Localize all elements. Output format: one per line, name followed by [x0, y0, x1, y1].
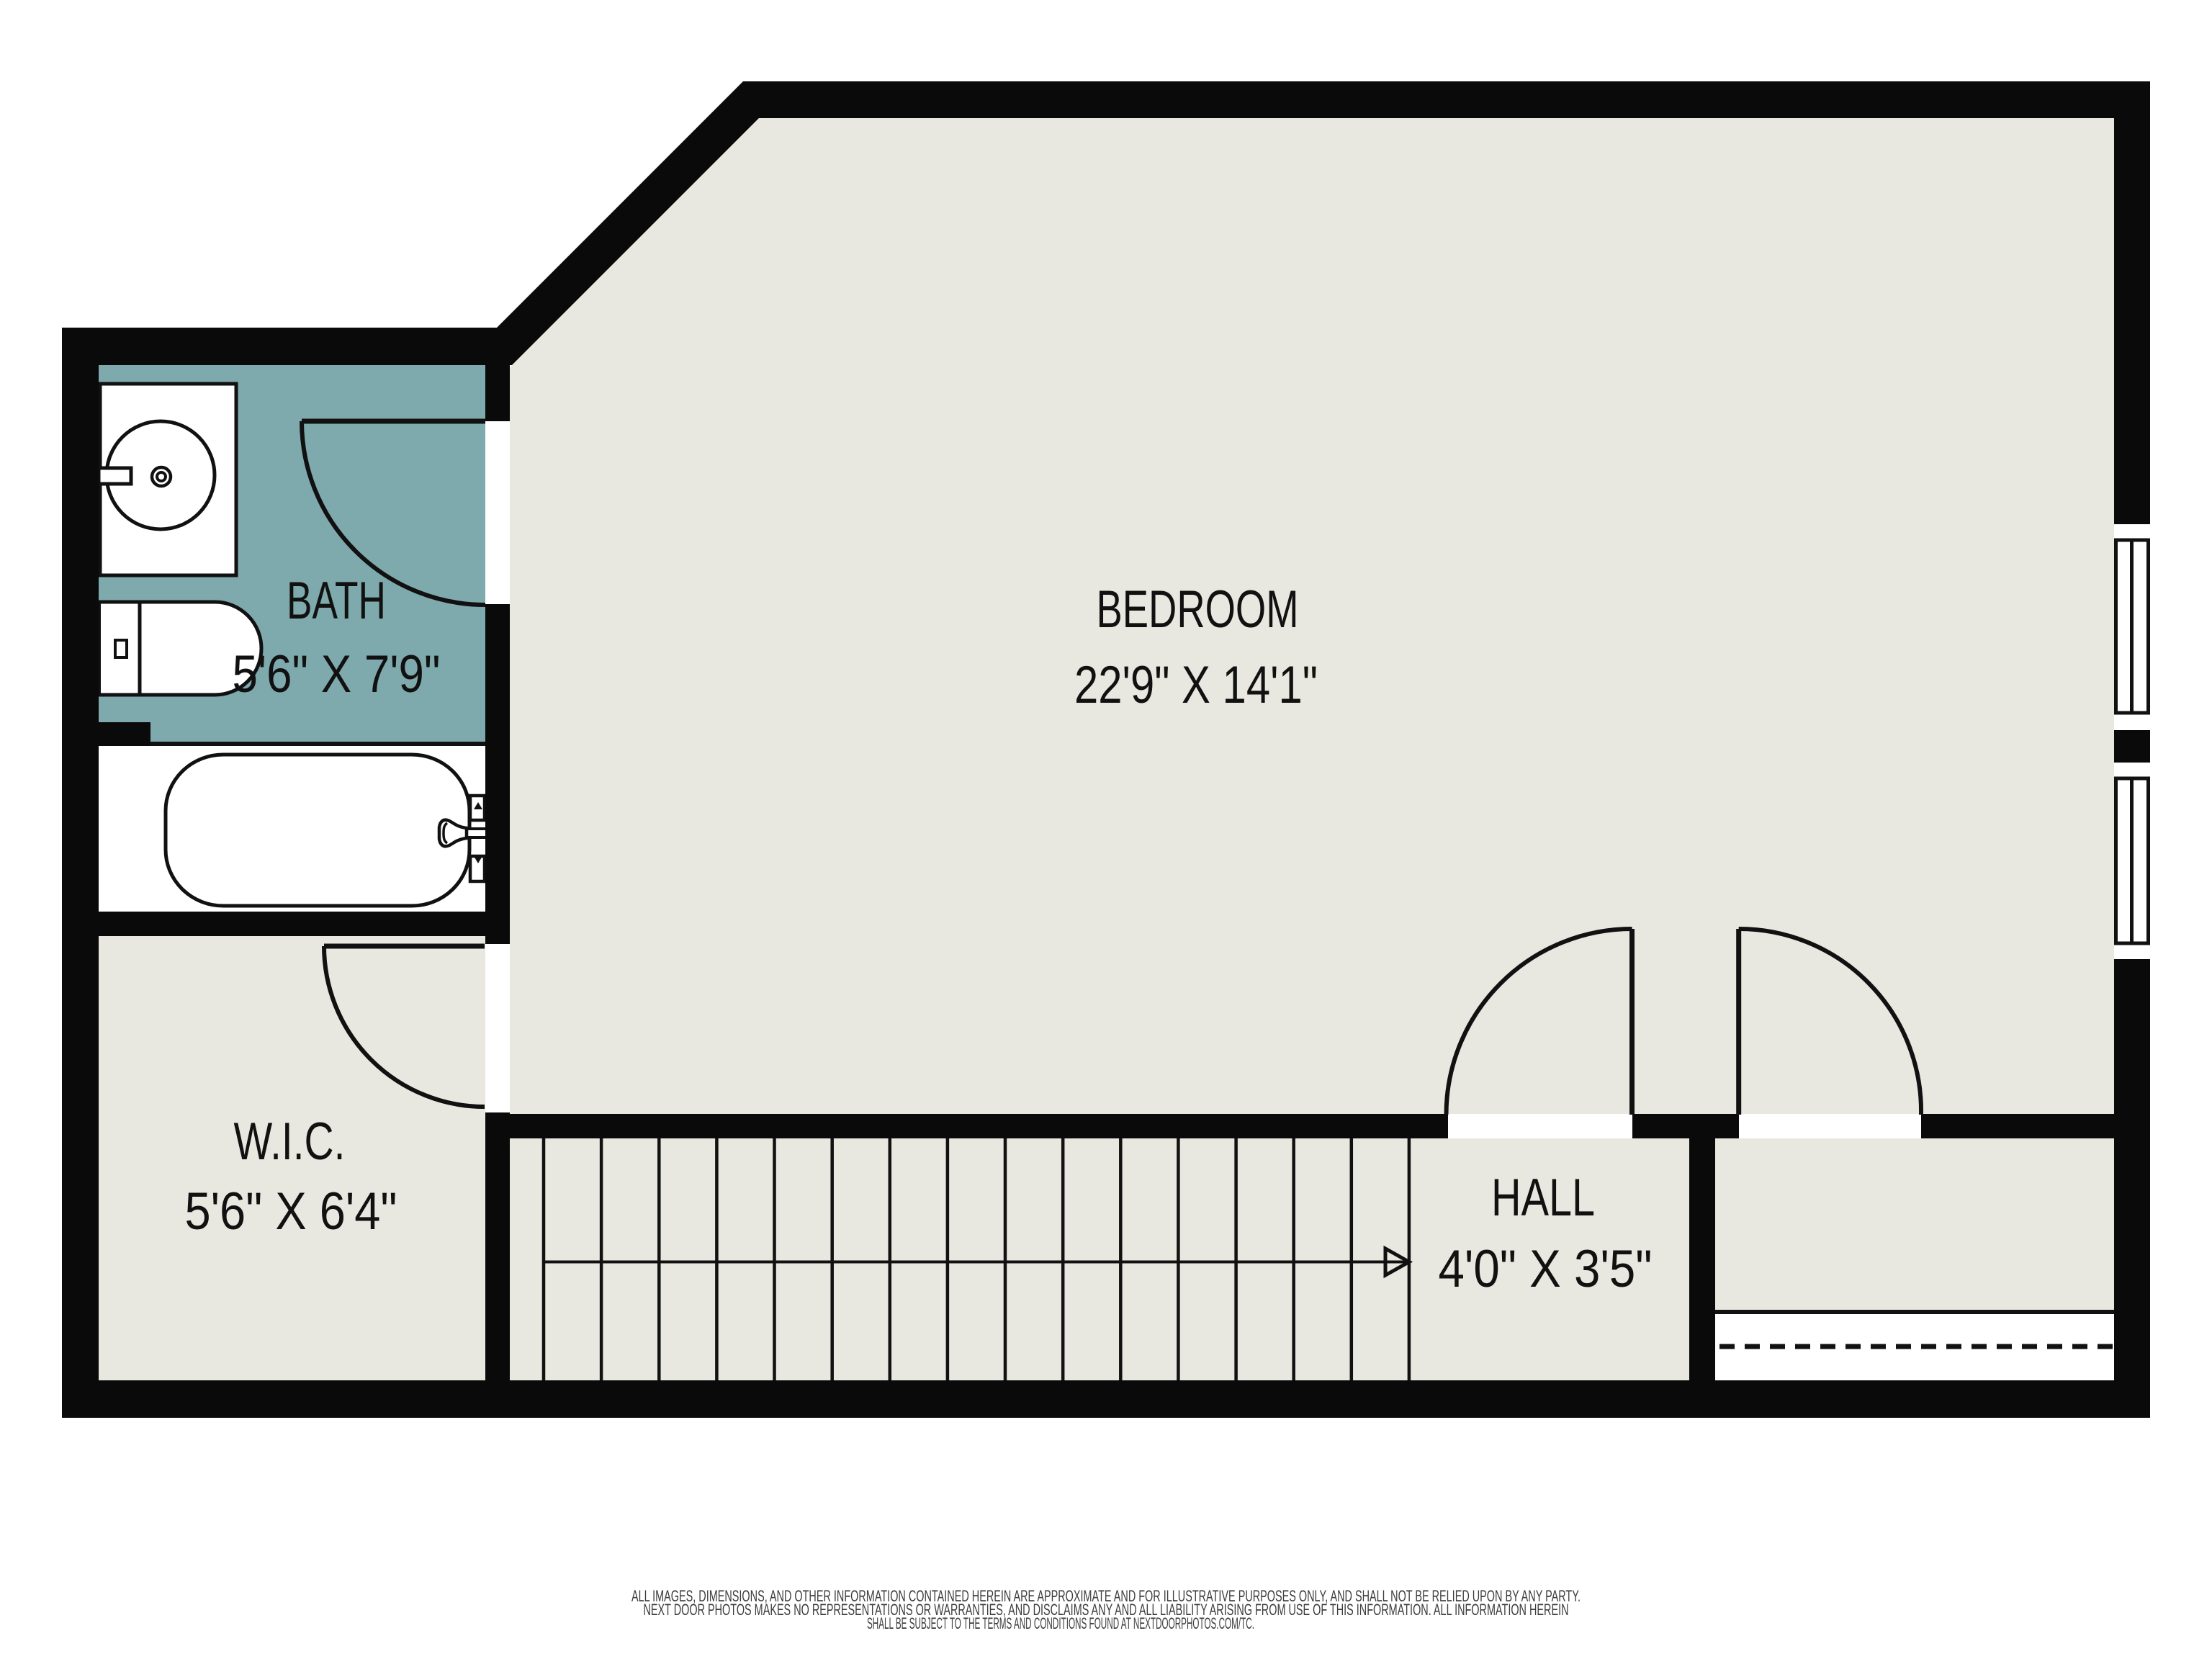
svg-text:HALL: HALL	[1491, 1169, 1595, 1227]
svg-text:22'9" X 14'1": 22'9" X 14'1"	[1074, 656, 1318, 714]
svg-text:SHALL BE SUBJECT TO THE TERMS: SHALL BE SUBJECT TO THE TERMS AND CONDIT…	[867, 1614, 1254, 1632]
svg-text:BATH: BATH	[287, 572, 386, 630]
svg-text:5'6" X 6'4": 5'6" X 6'4"	[185, 1182, 397, 1241]
svg-text:BEDROOM: BEDROOM	[1097, 580, 1299, 639]
svg-text:4'0" X 3'5": 4'0" X 3'5"	[1439, 1240, 1653, 1298]
svg-text:5'6" X 7'9": 5'6" X 7'9"	[233, 645, 441, 703]
svg-text:W.I.C.: W.I.C.	[234, 1112, 346, 1171]
